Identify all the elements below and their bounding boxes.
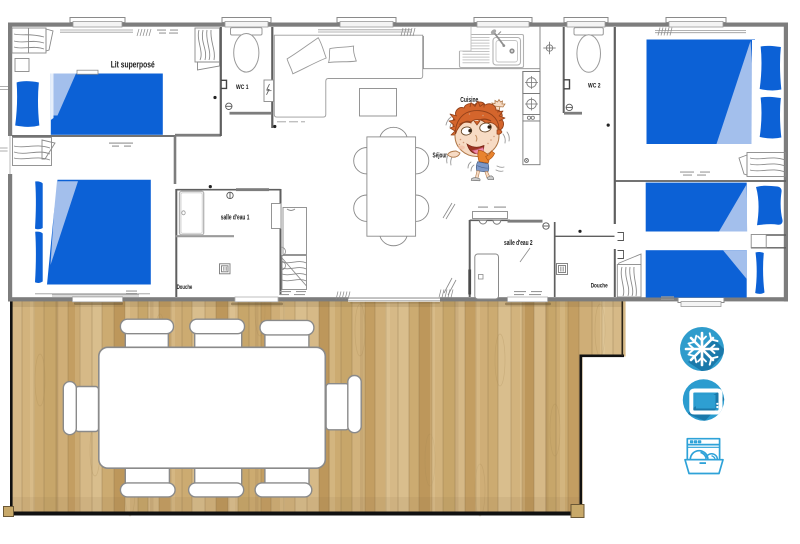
svg-text:salle d'eau 1: salle d'eau 1 xyxy=(221,212,250,221)
svg-text:Séjour: Séjour xyxy=(433,152,448,159)
svg-text:WC 2: WC 2 xyxy=(588,83,601,90)
svg-text:WC 1: WC 1 xyxy=(236,84,249,91)
svg-text:salle d'eau 2: salle d'eau 2 xyxy=(504,238,533,247)
svg-text:Lit superposé: Lit superposé xyxy=(111,60,155,71)
svg-text:Douche: Douche xyxy=(591,283,608,290)
svg-text:Douche: Douche xyxy=(177,284,193,291)
svg-text:Cuisine: Cuisine xyxy=(460,95,478,104)
